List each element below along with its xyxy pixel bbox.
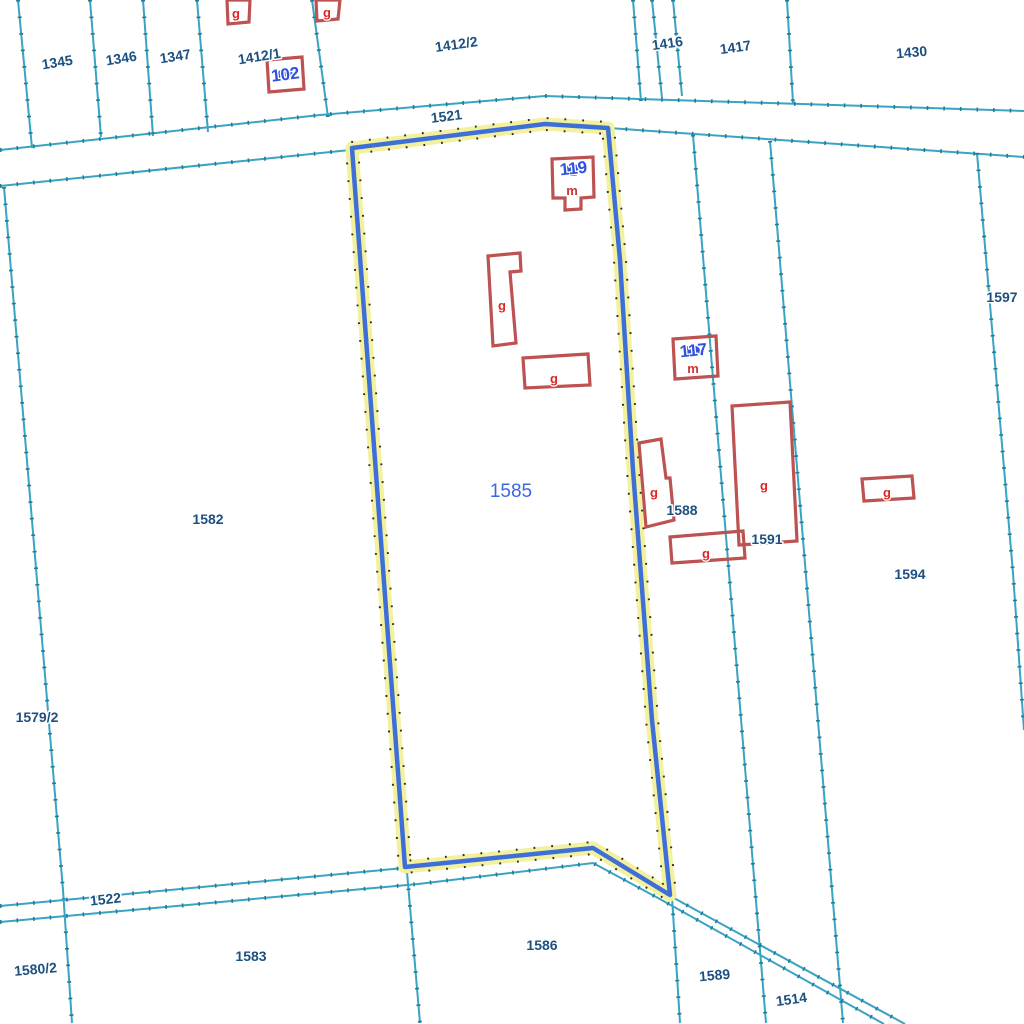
parcel-label-1430: 1430 <box>895 43 928 62</box>
building-usage-label-building-g-wide-1585: g <box>550 371 558 386</box>
building-usage-label-building-g-wide-1588: g <box>702 546 710 561</box>
building-usage-label-building-119: m <box>566 183 578 198</box>
building-usage-label-building-g-tall: g <box>498 298 506 313</box>
parcel-label-1579-2: 1579/2 <box>16 709 59 725</box>
map-viewport[interactable]: ggmggmgggg1345134613471412/11412/2141614… <box>0 0 1024 1024</box>
parcel-label-1583: 1583 <box>235 948 266 964</box>
parcel-label-1522: 1522 <box>89 889 122 908</box>
address-label-117: 117 <box>679 340 708 362</box>
parcel-label-1588: 1588 <box>666 502 697 518</box>
building-usage-label-building-g-1588: g <box>650 485 658 500</box>
address-label-119: 119 <box>559 158 588 180</box>
selected-parcel-label: 1585 <box>490 481 532 502</box>
building-usage-label-building-g-1594: g <box>883 485 891 500</box>
building-usage-label-building-g-1591: g <box>760 478 768 493</box>
address-label-102: 102 <box>270 63 300 85</box>
building-usage-label-building-117: m <box>687 361 699 376</box>
parcel-label-1582: 1582 <box>192 511 223 527</box>
map-background <box>0 0 1024 1024</box>
parcel-label-1597: 1597 <box>986 289 1017 305</box>
building-usage-label-building-g-top-1: g <box>232 6 240 21</box>
map-canvas[interactable]: ggmggmgggg1345134613471412/11412/2141614… <box>0 0 1024 1024</box>
parcel-label-1589: 1589 <box>698 966 731 985</box>
parcel-label-1591: 1591 <box>751 531 782 547</box>
building-usage-label-building-g-top-2: g <box>323 5 331 20</box>
parcel-label-1594: 1594 <box>894 566 925 582</box>
parcel-label-1586: 1586 <box>526 937 557 953</box>
